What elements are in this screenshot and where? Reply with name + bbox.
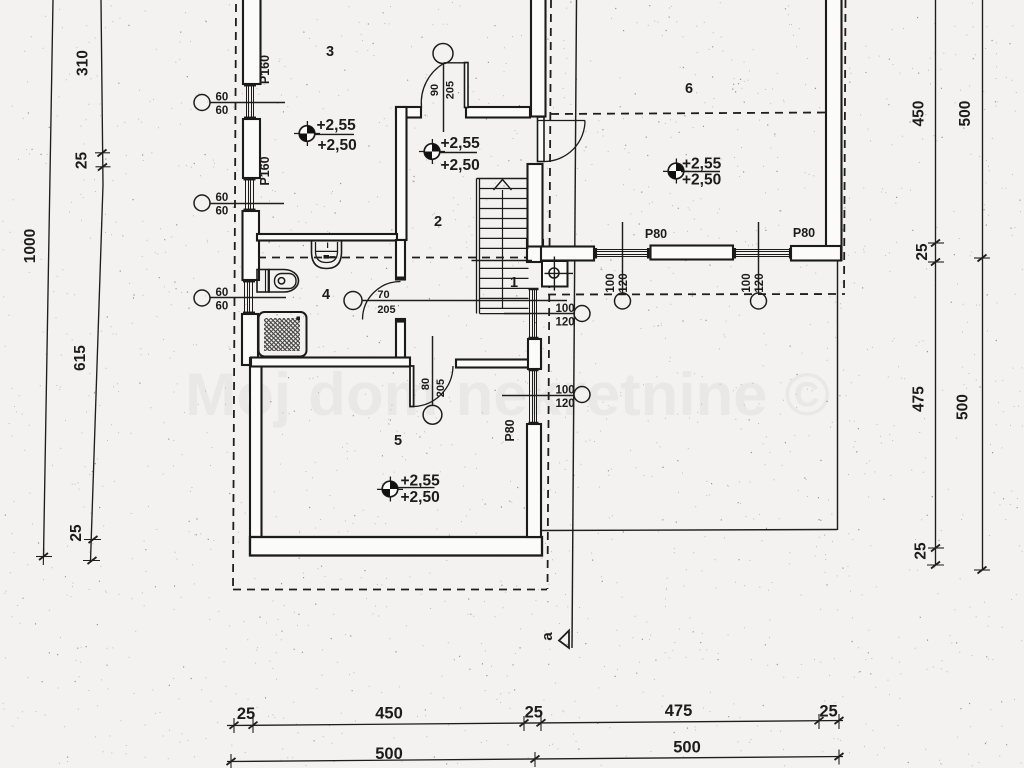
svg-text:P160: P160 [258,156,272,185]
svg-text:25: 25 [68,524,85,542]
svg-text:+2,55: +2,55 [317,117,357,134]
svg-text:+2,50: +2,50 [682,172,721,189]
svg-text:60: 60 [216,192,229,204]
svg-text:100: 100 [556,385,575,397]
svg-text:205: 205 [435,379,447,397]
svg-text:60: 60 [216,92,229,104]
svg-text:6: 6 [685,81,693,97]
svg-text:70: 70 [377,289,389,301]
svg-text:2: 2 [434,214,442,230]
svg-text:475: 475 [665,702,693,720]
svg-text:+2,50: +2,50 [441,157,480,174]
svg-text:P80: P80 [793,226,815,240]
svg-text:500: 500 [957,101,974,127]
svg-text:+2,50: +2,50 [401,489,440,506]
svg-text:25: 25 [819,703,837,721]
svg-text:25: 25 [74,152,91,170]
svg-text:475: 475 [911,386,928,412]
svg-text:100: 100 [605,273,617,292]
svg-text:P80: P80 [503,419,517,441]
svg-text:+2,50: +2,50 [318,137,357,154]
svg-text:+2,55: +2,55 [441,135,481,152]
svg-text:P80: P80 [645,227,667,241]
svg-text:615: 615 [72,345,89,371]
svg-text:25: 25 [914,243,931,261]
svg-text:Moj dom nekretnine ©: Moj dom nekretnine © [185,361,830,428]
svg-text:3: 3 [326,44,334,60]
svg-text:90: 90 [429,84,441,96]
svg-text:P160: P160 [258,55,272,84]
svg-text:450: 450 [375,705,403,723]
svg-text:205: 205 [377,304,395,316]
svg-text:60: 60 [216,287,229,299]
svg-text:120: 120 [754,273,766,292]
svg-text:1: 1 [510,275,518,291]
svg-text:1000: 1000 [22,229,39,263]
svg-text:500: 500 [673,739,701,757]
svg-text:60: 60 [216,206,229,218]
svg-text:+2,55: +2,55 [401,473,441,490]
svg-text:+2,55: +2,55 [682,156,722,173]
svg-text:5: 5 [394,433,402,449]
svg-text:310: 310 [75,50,92,76]
svg-text:205: 205 [445,81,457,99]
svg-text:25: 25 [525,704,543,722]
svg-text:500: 500 [955,394,972,420]
svg-text:60: 60 [216,301,229,313]
svg-text:a: a [539,632,556,641]
svg-text:80: 80 [420,378,432,390]
svg-text:25: 25 [237,705,255,723]
svg-text:60: 60 [216,105,229,117]
svg-text:450: 450 [911,101,928,127]
svg-text:500: 500 [375,745,403,763]
svg-text:100: 100 [556,303,575,315]
svg-text:120: 120 [556,398,575,410]
svg-text:100: 100 [741,273,753,292]
svg-text:25: 25 [913,542,930,560]
svg-text:120: 120 [618,273,630,292]
svg-text:120: 120 [556,317,575,329]
svg-text:4: 4 [322,287,330,303]
